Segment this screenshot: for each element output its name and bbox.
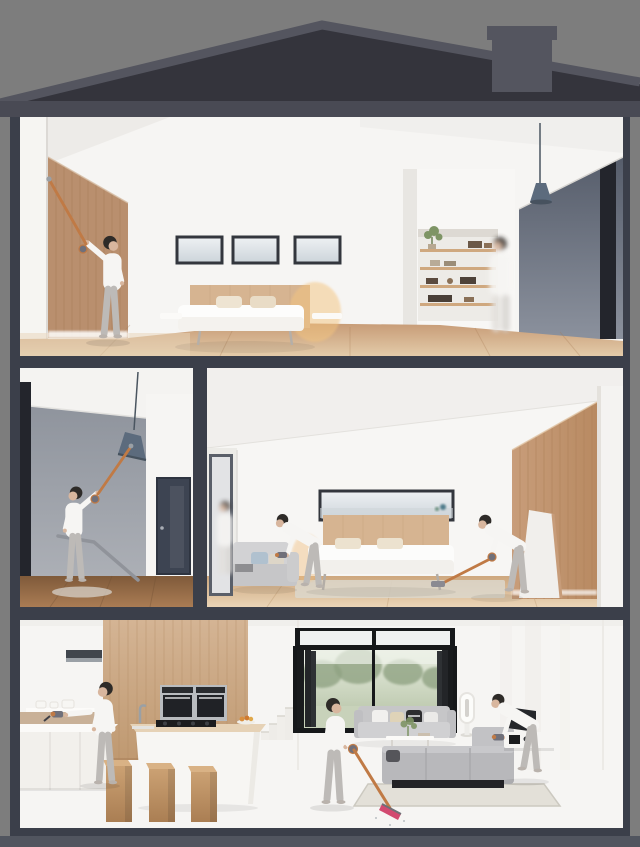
- chimney: [487, 26, 557, 92]
- wooden-stools: [103, 760, 217, 822]
- middle-floor-landing-photo: [20, 368, 193, 607]
- ground-floor-photo: [20, 620, 623, 828]
- interior-door: [157, 478, 190, 574]
- extractor-hood: [66, 650, 102, 662]
- roof: [0, 0, 640, 117]
- middle-floor-bedroom-photo: [207, 368, 623, 607]
- handheld-vacuum: [492, 734, 504, 741]
- double-ovens: [160, 685, 227, 721]
- clerestory-windows: [177, 237, 340, 263]
- wood-floor: [20, 576, 193, 607]
- top-floor-photo: [20, 117, 623, 356]
- accent-dark-strip: [20, 382, 31, 607]
- roof-eave-beam: [0, 101, 640, 117]
- foundation-base: [0, 836, 640, 847]
- right-pillar: [597, 386, 623, 607]
- house-cutaway-illustration: Cutaway cross-section of a three-storey …: [0, 0, 640, 847]
